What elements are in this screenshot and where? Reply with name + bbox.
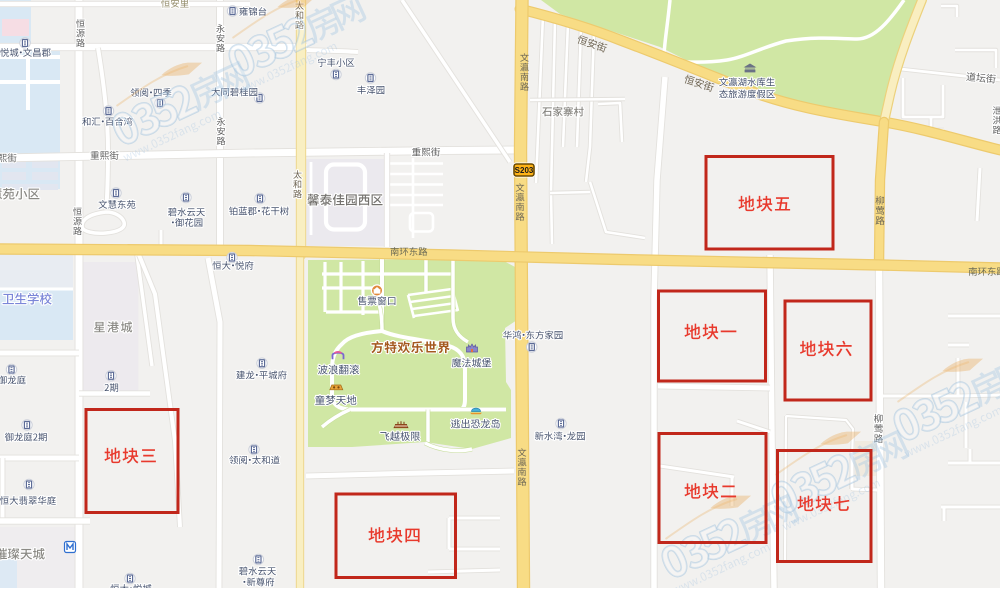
svg-text:S203: S203 bbox=[515, 166, 534, 175]
